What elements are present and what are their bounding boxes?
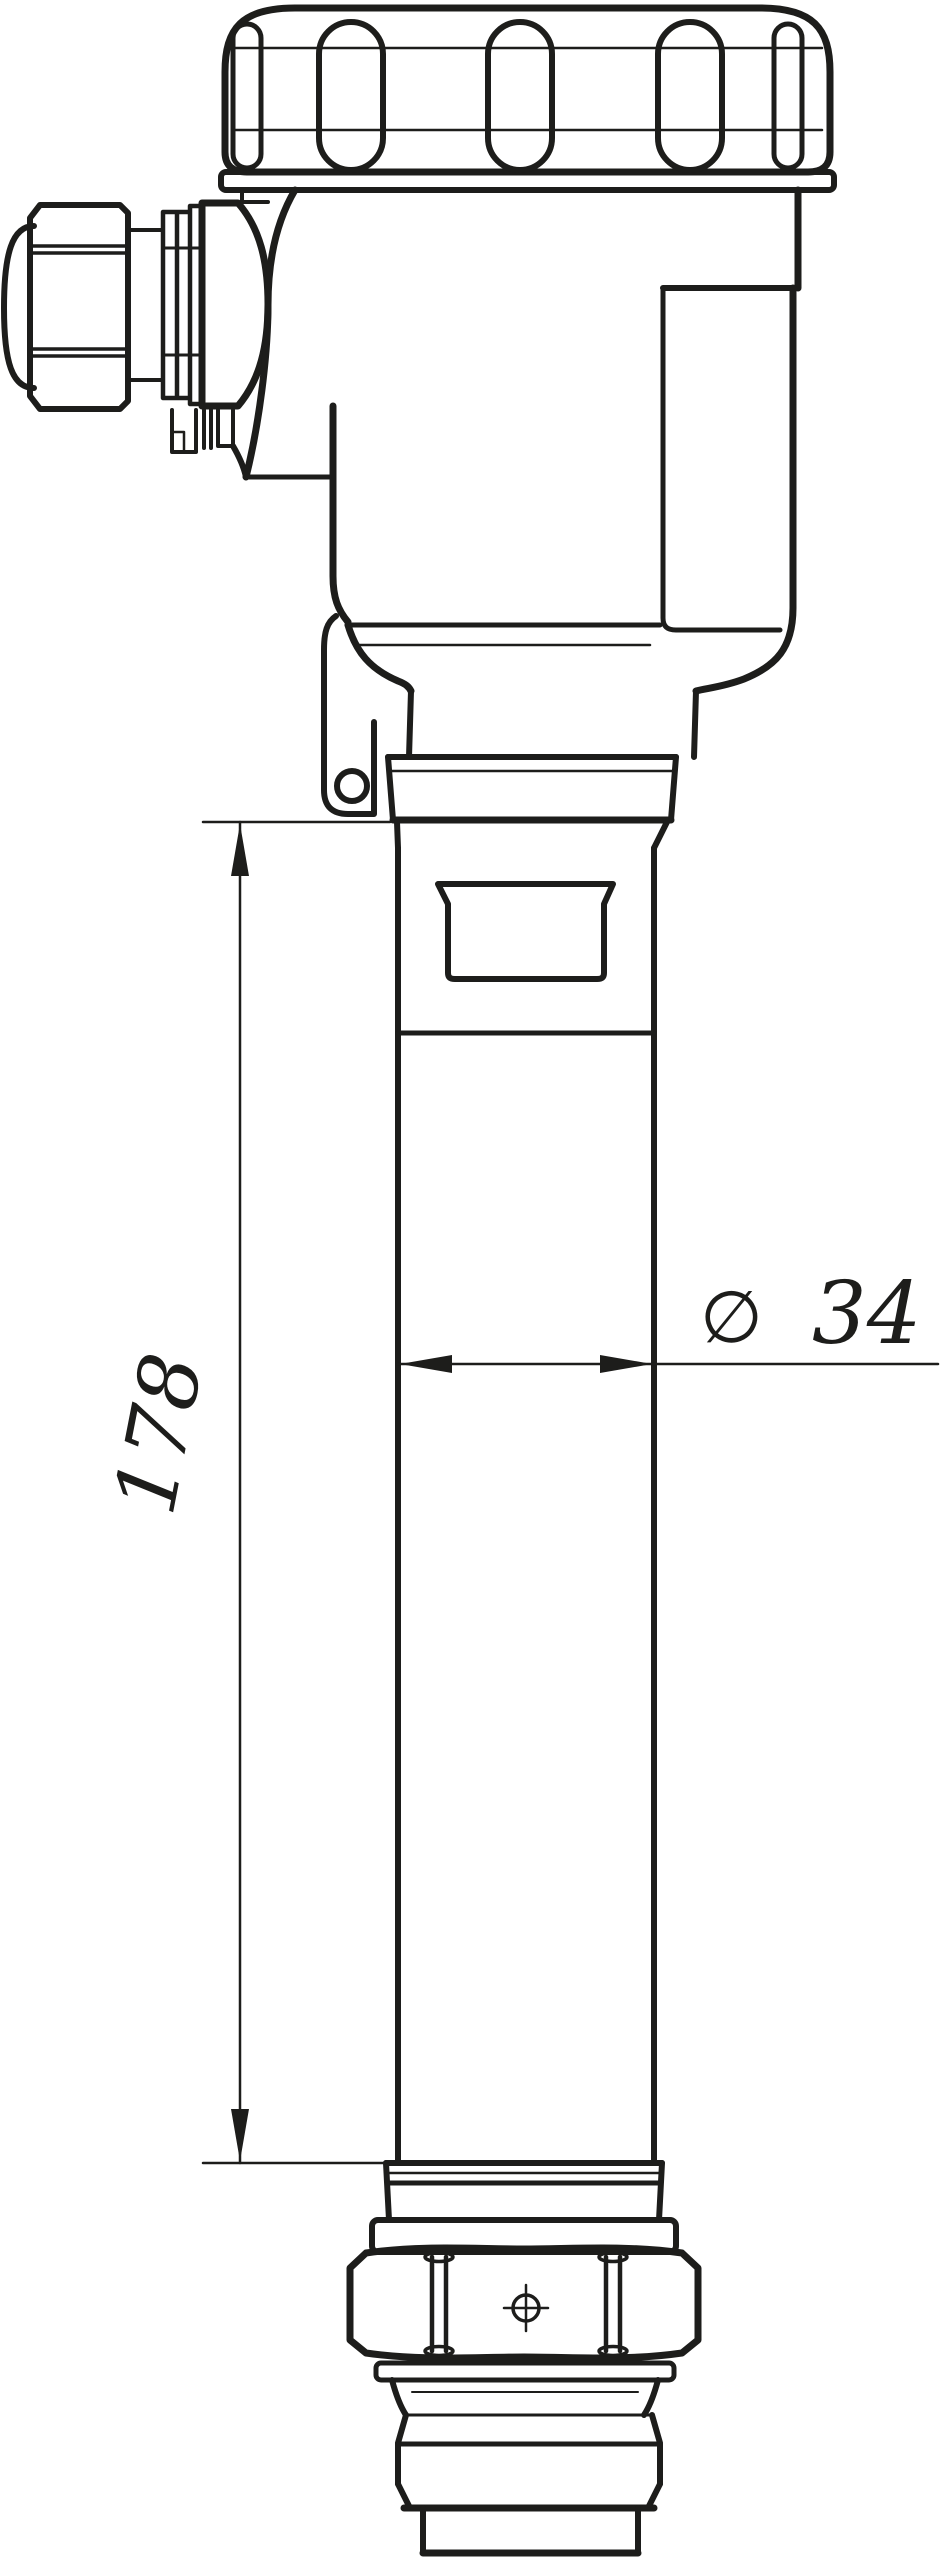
housing-boss-tip xyxy=(233,446,246,477)
bottom-plug-sides xyxy=(423,2508,638,2553)
hex-facet-corner-tr xyxy=(599,2253,627,2262)
housing-left-shoulder xyxy=(348,625,411,691)
cable-gland xyxy=(4,203,268,452)
gland-neck xyxy=(128,230,163,380)
diameter-dimension-label: 34 xyxy=(812,1264,921,1364)
terminal-block-pins xyxy=(204,410,233,448)
thread-neck-curves xyxy=(392,2380,658,2415)
tube-window xyxy=(438,884,613,979)
knurl-slot-2 xyxy=(488,22,552,170)
gland-ring-divisions xyxy=(163,248,202,355)
cap-flange xyxy=(221,172,834,190)
housing-recessed-panel xyxy=(663,288,780,630)
hex-washer-lower xyxy=(376,2363,674,2380)
thread-sides xyxy=(398,2444,660,2484)
knurl-slot-3 xyxy=(658,22,722,170)
diameter-symbol: ∅ xyxy=(700,1275,763,1359)
technical-drawing-canvas: 178 ∅ 34 xyxy=(0,0,949,2560)
knurl-slot-partial-right xyxy=(774,24,802,168)
housing xyxy=(233,190,798,691)
diameter-arrow-left xyxy=(400,1355,452,1373)
neck-taper xyxy=(397,822,667,848)
knurl-slot-1 xyxy=(319,22,383,170)
gland-hex-facet-line-bottom xyxy=(32,349,126,356)
cap-body-outline xyxy=(225,8,830,172)
hex-facet-corner-br xyxy=(599,2347,627,2356)
thread-bottom-chamfers xyxy=(398,2484,660,2508)
process-connection xyxy=(350,2163,698,2553)
neck-side-right xyxy=(694,691,696,757)
gland-flange-disk xyxy=(202,203,268,406)
length-arrow-down xyxy=(231,2109,249,2161)
mounting-tab-hole xyxy=(337,771,367,801)
length-dimension-label: 178 xyxy=(95,1346,222,1522)
diameter-arrow-right xyxy=(600,1355,652,1373)
gland-rings xyxy=(163,206,202,404)
hex-facet-corner-tl xyxy=(425,2253,453,2262)
hex-nut-outline xyxy=(350,2248,698,2358)
neck-collar-sides xyxy=(388,757,676,820)
housing-left-edge xyxy=(333,406,348,622)
bottom-collar-sides xyxy=(386,2163,662,2220)
drawing-page: 178 ∅ 34 xyxy=(0,0,949,2560)
neck-adapter xyxy=(324,616,696,848)
screw-cover xyxy=(221,8,834,190)
probe-tube xyxy=(398,848,654,2163)
hex-facet-corner-bl xyxy=(425,2347,453,2356)
dimension-length: 178 xyxy=(95,822,390,2163)
center-mark-crosshair xyxy=(504,2285,548,2331)
thread-top-chamfers xyxy=(398,2415,660,2443)
knurl-slot-partial-left xyxy=(233,24,261,168)
gland-hex-nut xyxy=(30,205,128,409)
neck-side-left xyxy=(409,691,411,757)
length-arrow-up xyxy=(231,824,249,876)
gland-hex-facet-line-top xyxy=(32,246,126,253)
dimension-diameter: ∅ 34 xyxy=(398,1264,938,1373)
